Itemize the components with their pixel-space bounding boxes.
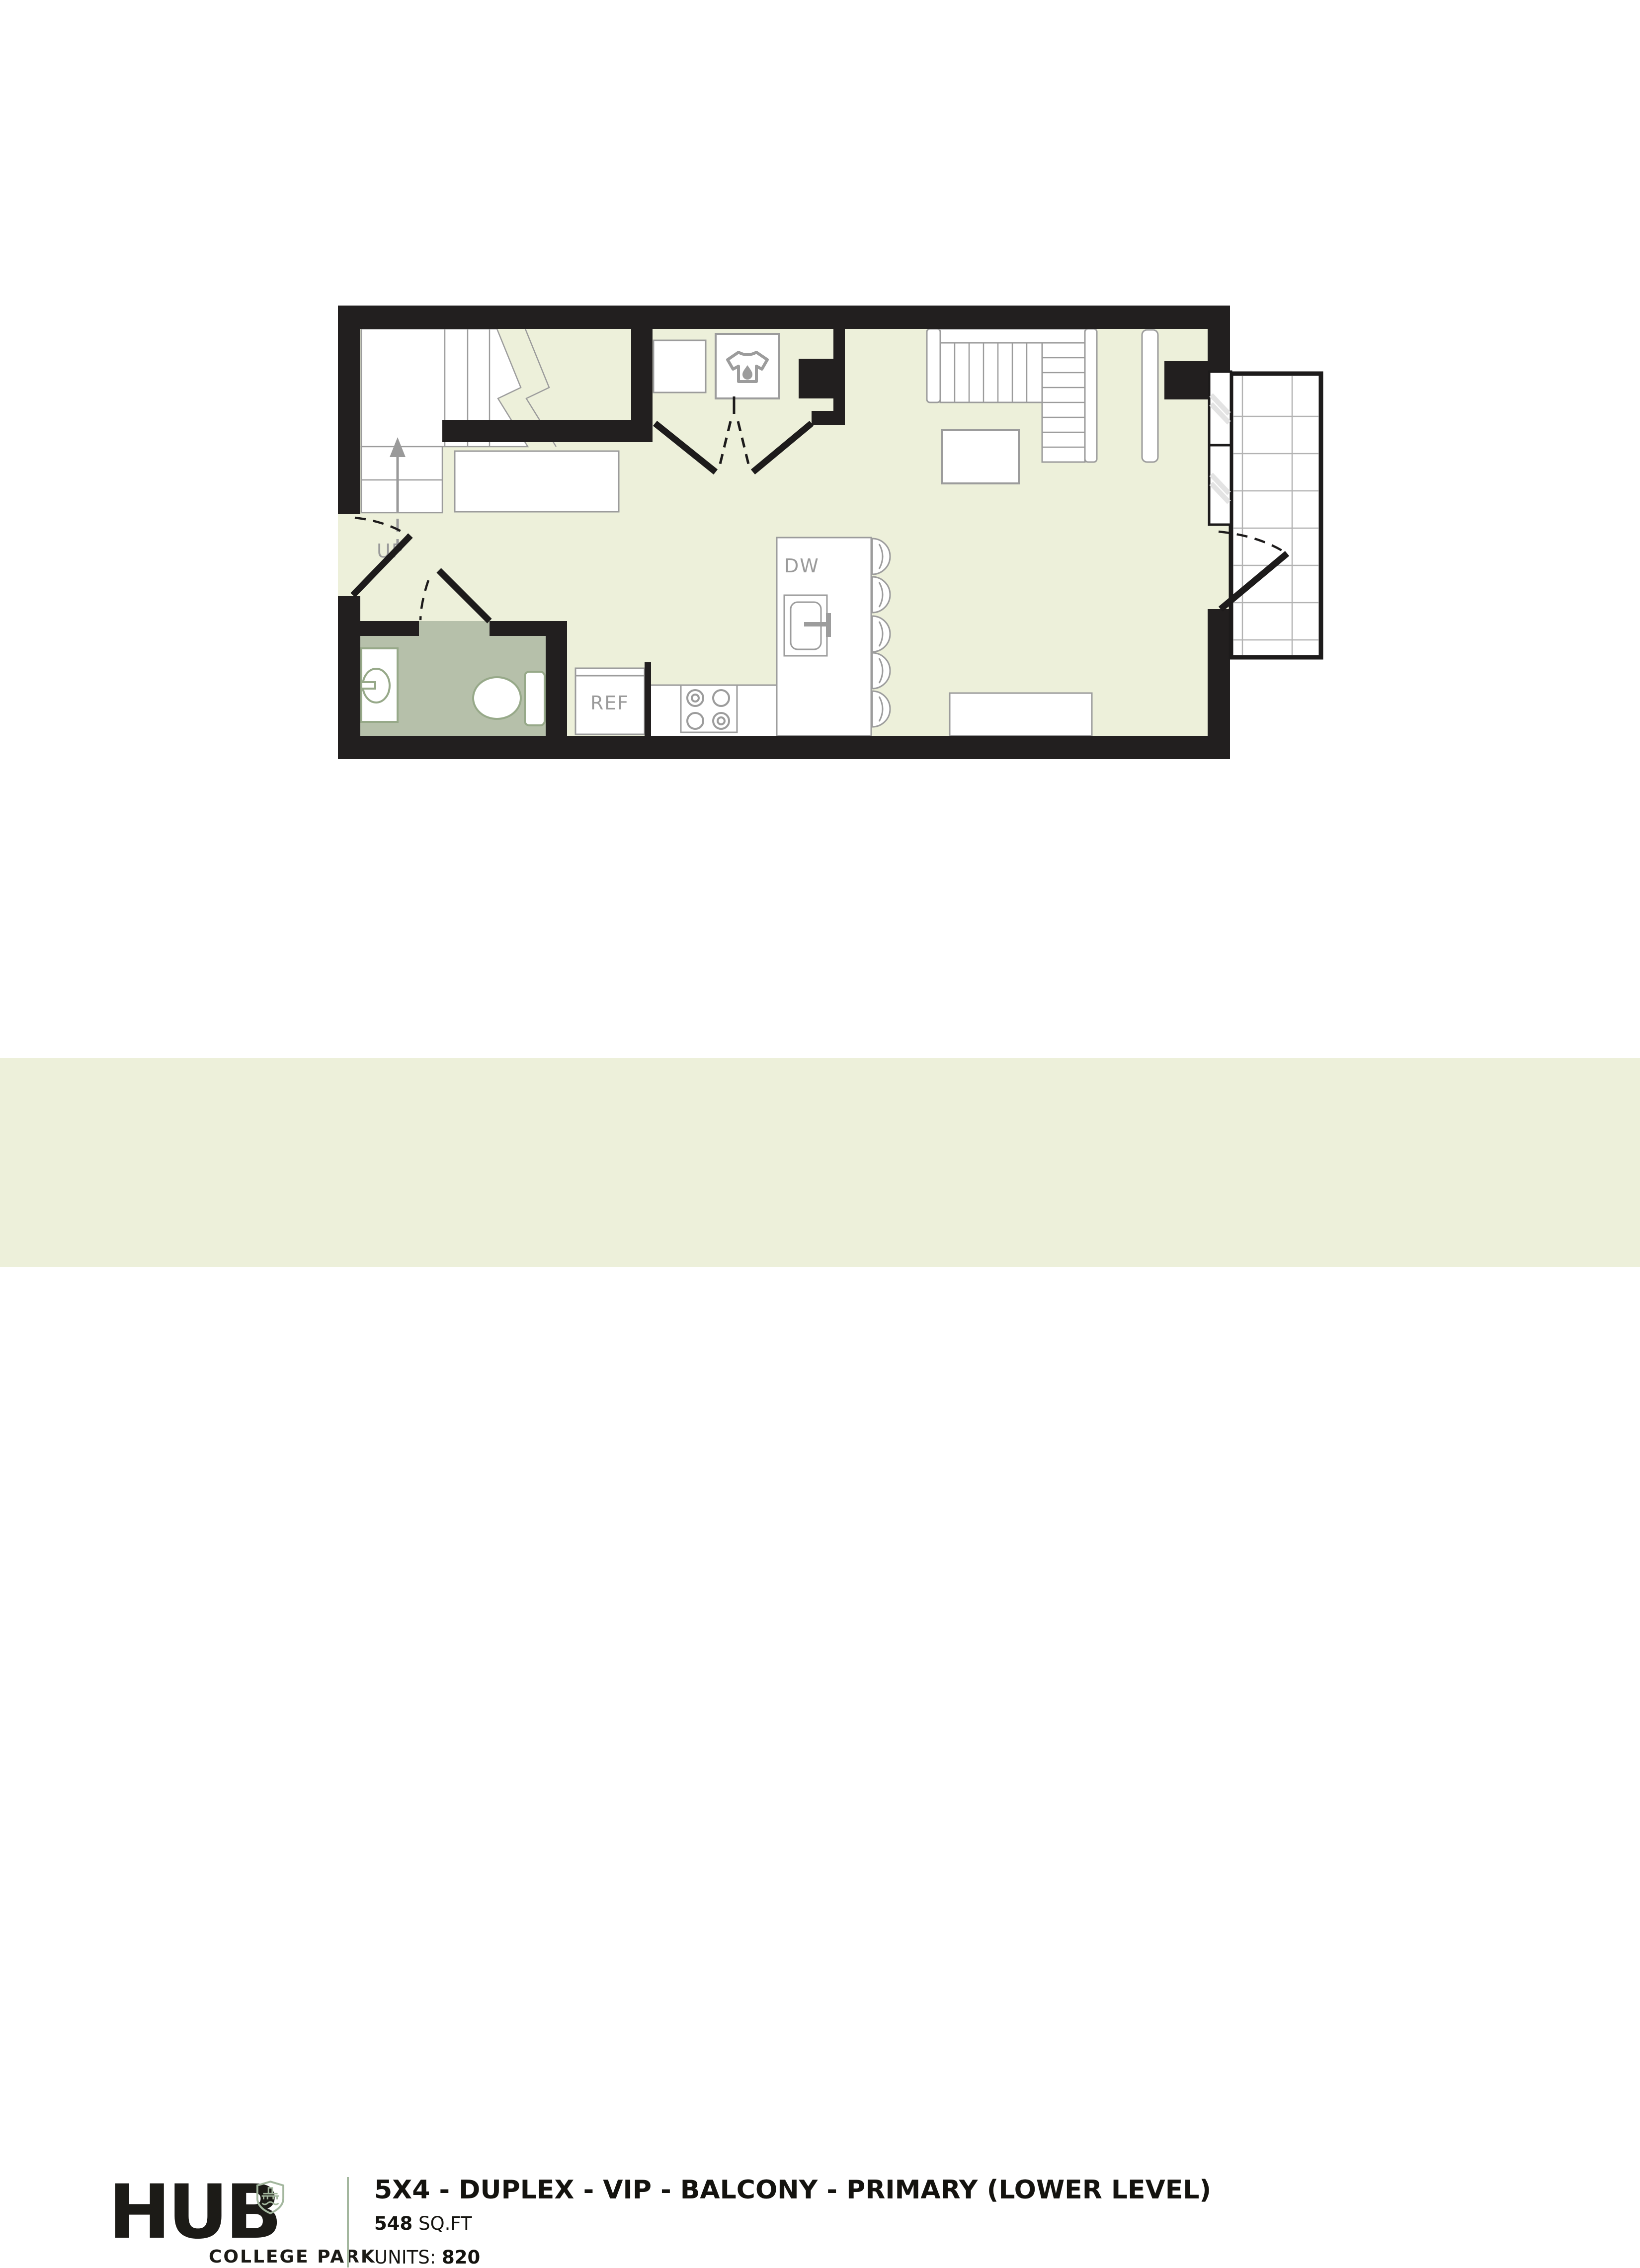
- wall-laundry-foot: [812, 411, 845, 425]
- wall-bath-right: [546, 621, 567, 736]
- brand-logo: HUB: [108, 2175, 279, 2250]
- wall-laundry-jamb: [833, 306, 845, 425]
- wall-ref-divider: [645, 662, 651, 736]
- units-label: UNITS:: [374, 2247, 442, 2268]
- footer-divider: [347, 2177, 349, 2268]
- wall-top: [338, 306, 1230, 329]
- kitchen-island: DW: [777, 538, 890, 736]
- area-unit: SQ.FT: [412, 2213, 472, 2234]
- plan-units: UNITS: 820: [374, 2247, 480, 2268]
- wall-bath-top-left: [338, 621, 419, 636]
- dishwasher-label: DW: [784, 555, 820, 577]
- plan-area: 548 SQ.FT: [374, 2213, 472, 2234]
- wall-stair-stub: [442, 420, 653, 442]
- washer: [654, 340, 706, 392]
- vanity-sink: [361, 648, 398, 722]
- wall-left-lower: [338, 596, 360, 759]
- refrigerator-label: REF: [590, 692, 629, 714]
- bathroom-door-opening: [419, 621, 490, 636]
- footer: HUB COLLEGE PARK 5X4 - DUPLEX - VIP - BA…: [0, 1058, 1640, 1267]
- wall-laundry-chunk: [799, 359, 835, 398]
- floor-plan: UP: [318, 288, 1352, 775]
- bar-stools: [872, 539, 890, 727]
- wall-left-upper: [338, 306, 360, 514]
- cooktop: [681, 685, 737, 732]
- dresser: [950, 693, 1092, 736]
- area-value: 548: [374, 2213, 412, 2234]
- wall-right-notch: [1164, 361, 1209, 399]
- wall-bottom: [338, 736, 1230, 759]
- windows: [1209, 372, 1231, 525]
- balcony-door-opening: [1208, 525, 1230, 609]
- balcony: [1231, 374, 1321, 657]
- desk: [455, 451, 619, 512]
- refrigerator: REF: [575, 668, 645, 734]
- wall-right-lower: [1208, 609, 1230, 759]
- wall-right-upper: [1208, 306, 1230, 372]
- coffee-table: [942, 430, 1019, 483]
- console-table: [1142, 330, 1158, 462]
- shield-icon: [256, 2180, 285, 2215]
- island-sink: [784, 595, 831, 656]
- units-value: 820: [442, 2247, 480, 2268]
- brand-sublabel: COLLEGE PARK: [209, 2247, 376, 2267]
- plan-title: 5X4 - DUPLEX - VIP - BALCONY - PRIMARY (…: [374, 2175, 1211, 2205]
- entry-door-opening: [338, 514, 360, 596]
- page: { "colors": { "wall": "#221f1f", "floor"…: [0, 0, 1640, 1267]
